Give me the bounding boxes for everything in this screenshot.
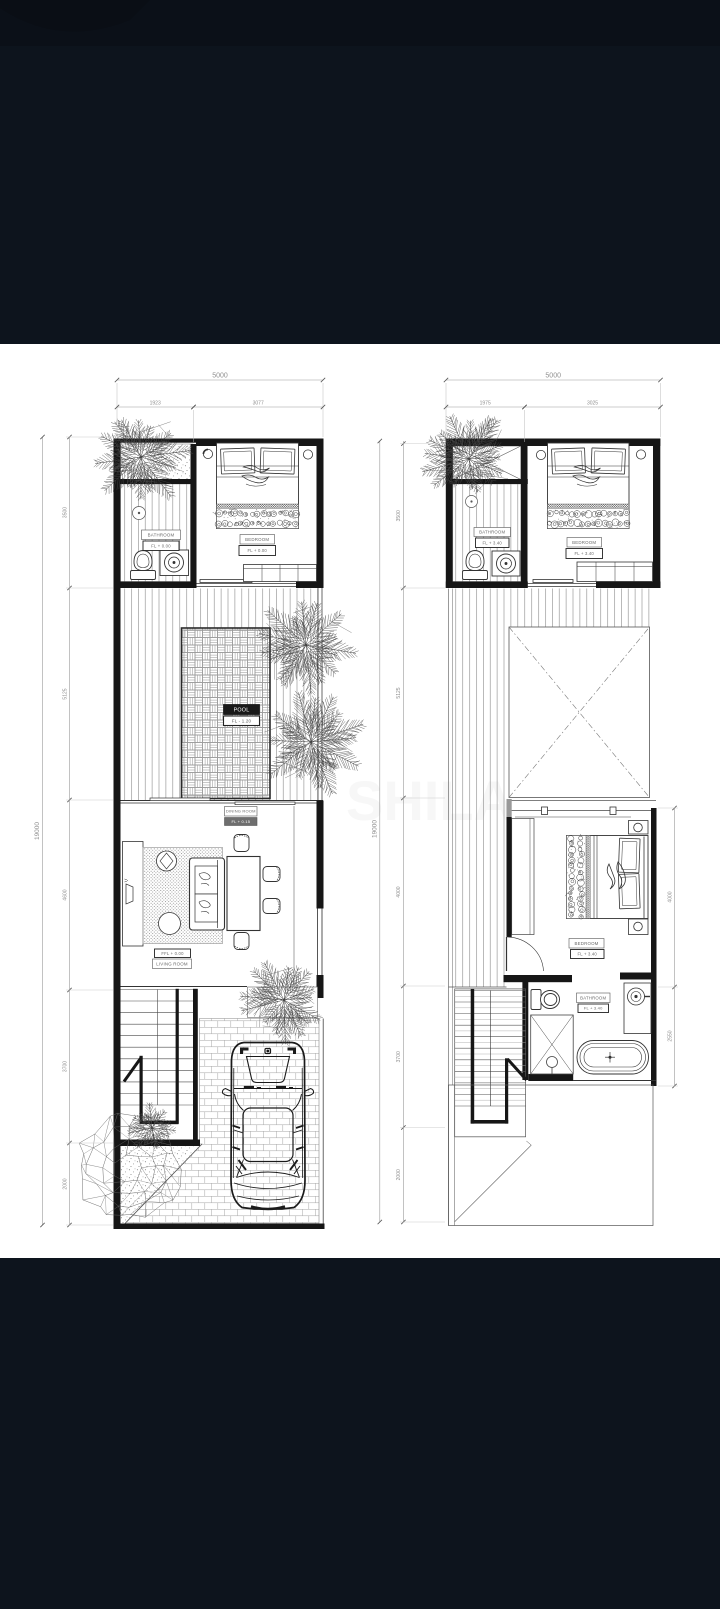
svg-text:FL + 0.00: FL + 0.00 [247,548,267,553]
svg-text:BEDROOM: BEDROOM [245,537,269,542]
svg-text:FL + 0.00: FL + 0.00 [151,543,171,548]
svg-text:4000: 4000 [396,886,402,897]
svg-text:3500: 3500 [63,507,69,518]
svg-text:2000: 2000 [63,1178,69,1189]
svg-text:FL + 3.40: FL + 3.40 [584,1006,603,1011]
svg-text:19000: 19000 [372,820,379,838]
svg-text:2550: 2550 [668,1030,674,1041]
svg-text:5125: 5125 [396,687,402,698]
svg-text:4000: 4000 [668,891,674,902]
svg-text:BEDROOM: BEDROOM [574,941,598,946]
svg-text:FL - 1.20: FL - 1.20 [232,718,252,723]
svg-text:2000: 2000 [396,1169,402,1180]
svg-text:POOL: POOL [234,707,250,713]
svg-text:FL + 3.40: FL + 3.40 [482,540,502,545]
svg-text:3700: 3700 [396,1051,402,1062]
svg-text:1923: 1923 [150,401,161,407]
svg-text:1975: 1975 [480,401,491,407]
svg-text:FL + 0.15: FL + 0.15 [231,819,250,824]
svg-text:3025: 3025 [587,401,598,407]
svg-text:3700: 3700 [63,1061,69,1072]
svg-text:BEDROOM: BEDROOM [572,540,596,545]
svg-text:5000: 5000 [212,373,228,380]
svg-text:BATHROOM: BATHROOM [479,530,505,535]
svg-text:LIVING ROOM: LIVING ROOM [156,961,188,966]
svg-text:19000: 19000 [34,822,41,840]
svg-text:FFL + 0.00: FFL + 0.00 [161,951,184,956]
svg-text:FL + 3.40: FL + 3.40 [577,952,597,957]
svg-text:3077: 3077 [253,401,264,407]
svg-text:3500: 3500 [396,510,402,521]
svg-text:4600: 4600 [63,889,69,900]
svg-text:BATHROOM: BATHROOM [580,995,606,1000]
svg-text:DINING ROOM: DINING ROOM [226,809,256,814]
svg-text:5125: 5125 [63,688,69,699]
svg-text:FL + 3.40: FL + 3.40 [574,551,594,556]
svg-text:5000: 5000 [545,373,561,380]
svg-text:BATHROOM: BATHROOM [148,532,175,537]
